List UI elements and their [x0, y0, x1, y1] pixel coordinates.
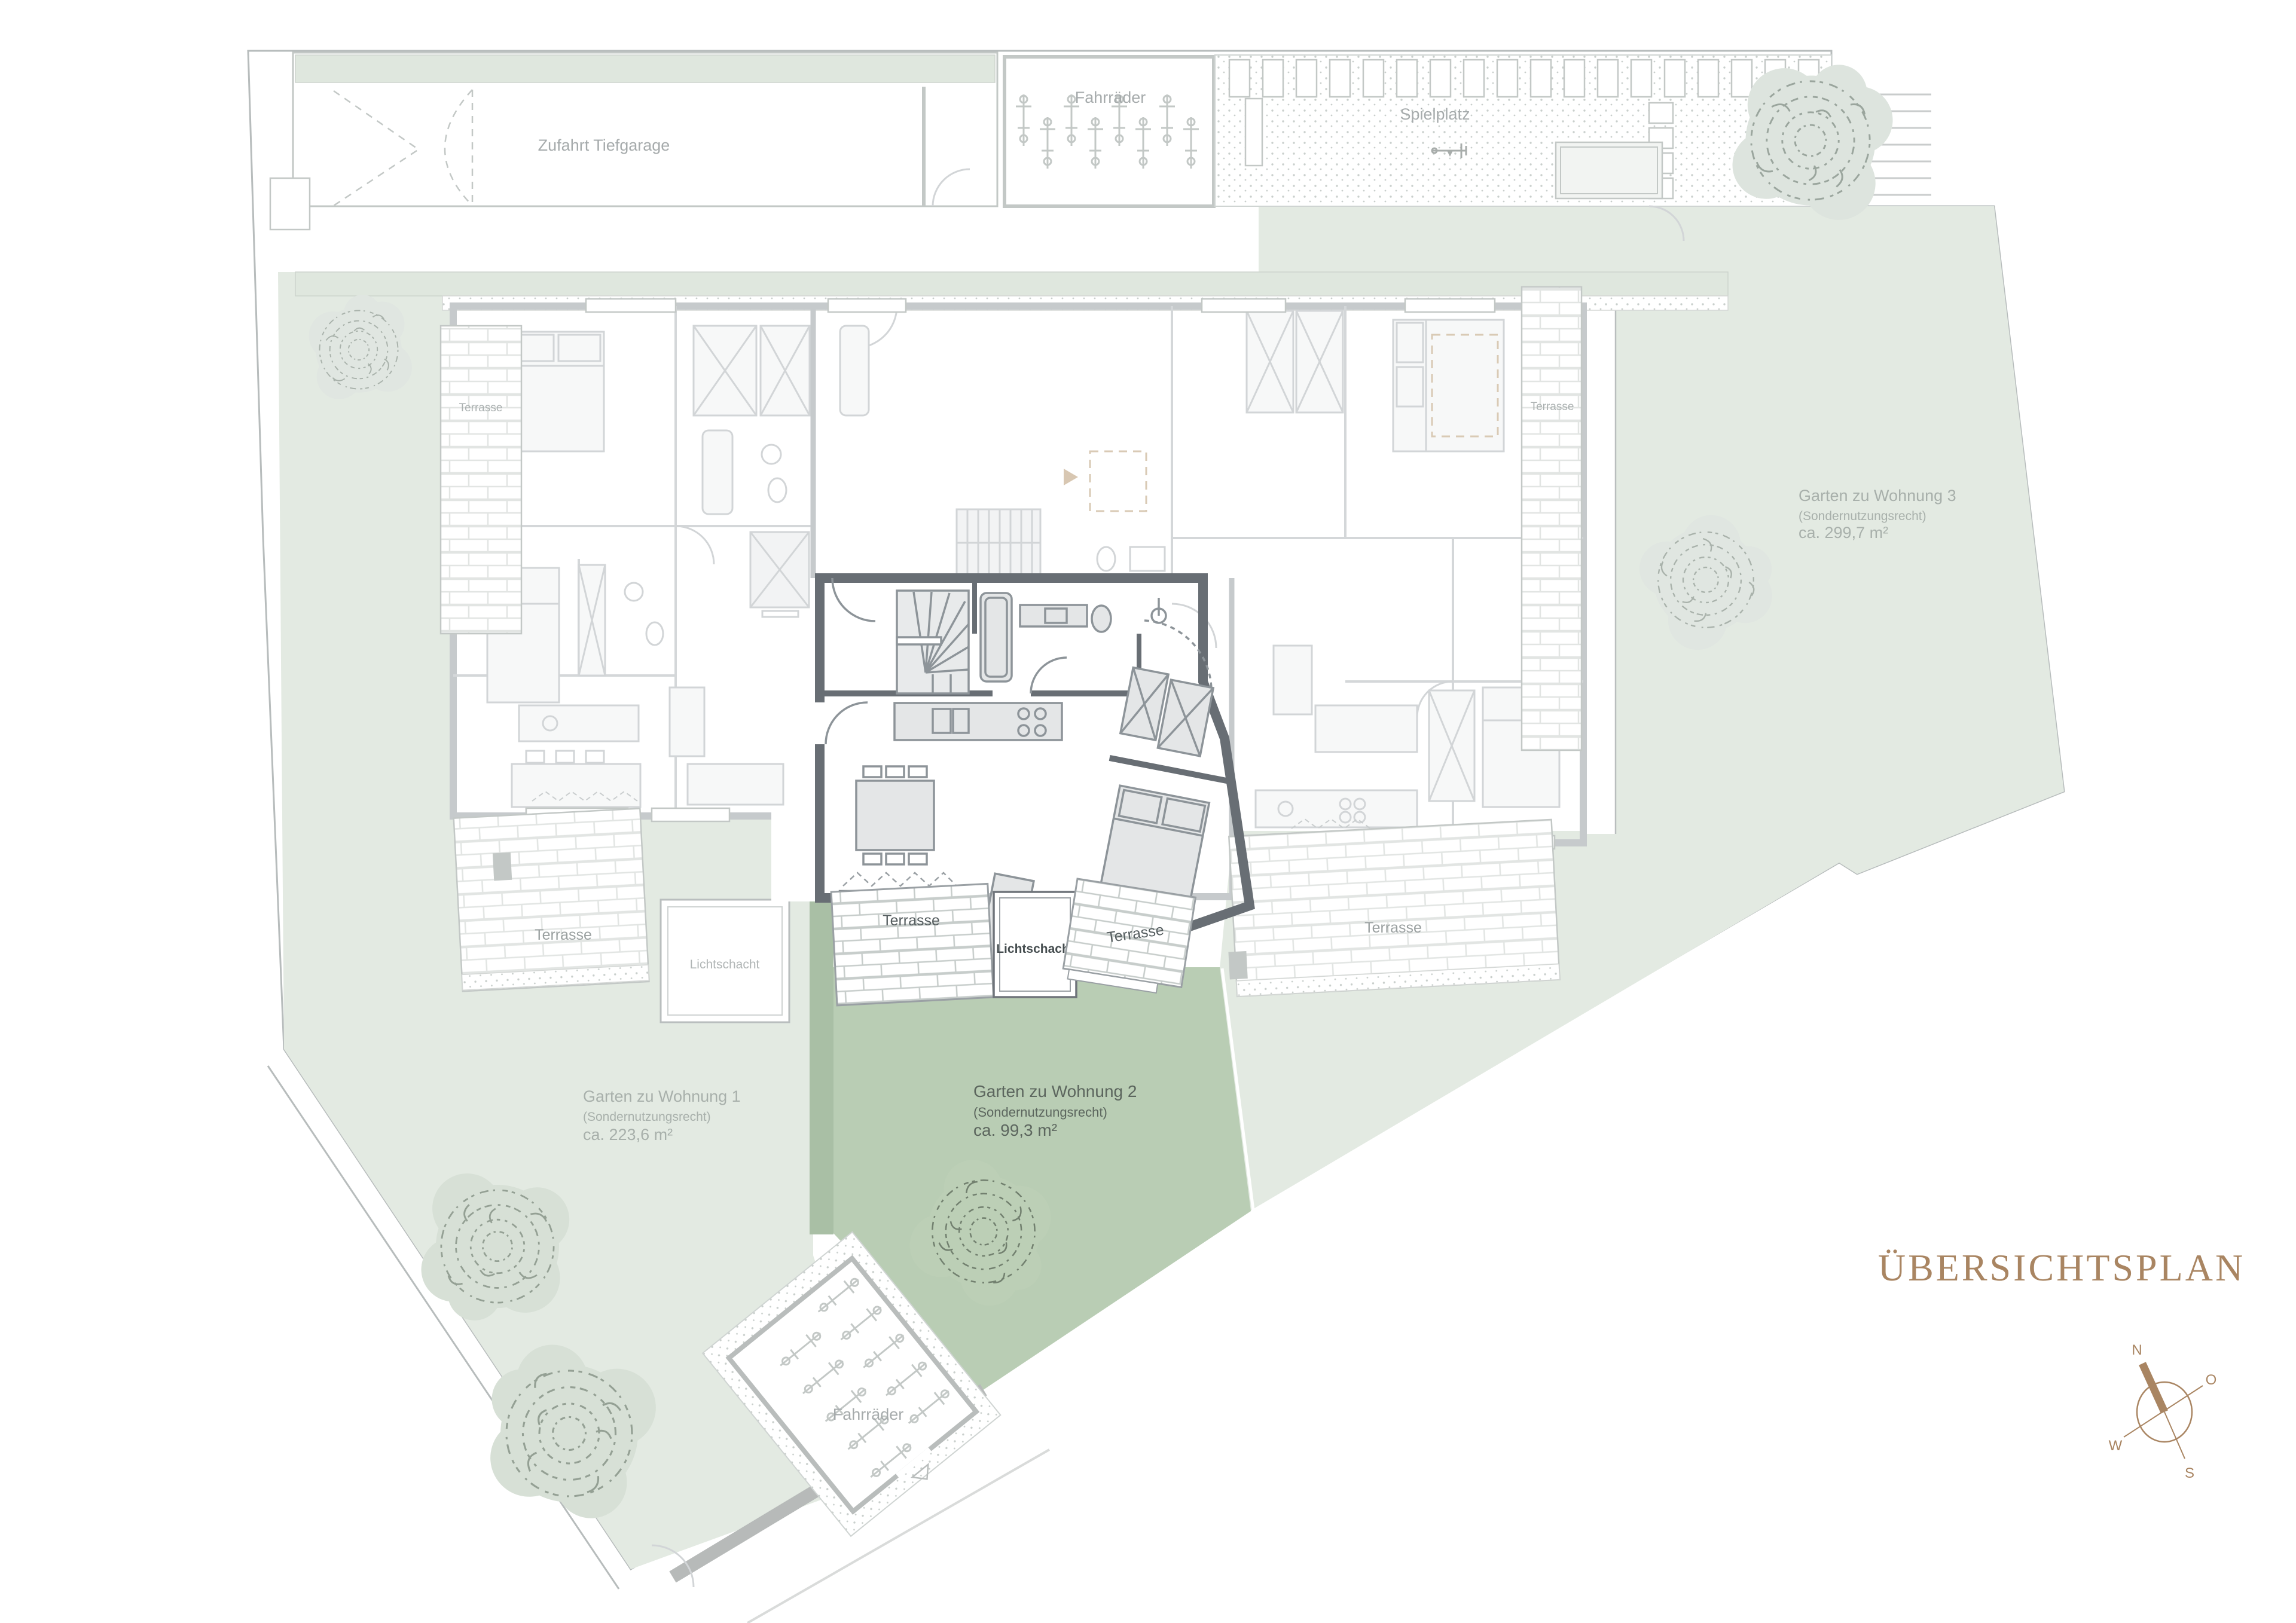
- garden-2-subtitle: (Sondernutzungsrecht): [973, 1105, 1107, 1120]
- sandbox: [1556, 142, 1662, 198]
- garden-1-area-label: ca. 223,6 m²: [583, 1126, 673, 1144]
- unit-dining: [856, 766, 934, 864]
- compass-o: O: [2206, 1372, 2217, 1388]
- compass-needle: [2142, 1364, 2164, 1412]
- terrace-southeast: [1222, 820, 1559, 997]
- unit-terrace-left-label: Terrasse: [883, 912, 940, 929]
- garage-ramp: Zufahrt Tiefgarage: [270, 53, 997, 230]
- terrace-west-side: Terrasse: [441, 326, 521, 634]
- site-plan: Zufahrt Tiefgarage Fahrräder: [0, 0, 2296, 1623]
- terrace-east-label: Terrasse: [1531, 401, 1574, 413]
- unit-stair: [897, 591, 969, 693]
- terrace-west-label: Terrasse: [459, 402, 503, 414]
- garden-2-hedge-strip: [810, 900, 833, 1234]
- lichtschacht-west-label: Lichtschacht: [690, 958, 760, 971]
- bike-room-south-label: Fahrräder: [833, 1405, 904, 1423]
- terrace-east-side: Terrasse: [1522, 287, 1581, 750]
- garage-entry-stoop: [270, 178, 310, 230]
- unit-kitchen: [894, 703, 1062, 740]
- garden-2-area-label: ca. 99,3 m²: [973, 1121, 1057, 1139]
- entry-marker-2: [1064, 469, 1078, 485]
- page-title: ÜBERSICHTSPLAN: [1878, 1246, 2245, 1289]
- garden-1-name: Garten zu Wohnung 1: [583, 1087, 741, 1105]
- terrace-sw-label: Terrasse: [535, 927, 592, 943]
- garden-1-subtitle: (Sondernutzungsrecht): [583, 1110, 711, 1124]
- garden-2-name: Garten zu Wohnung 2: [973, 1082, 1137, 1101]
- terrace-se-label: Terrasse: [1364, 919, 1422, 936]
- lichtschacht-center-label: Lichtschacht: [996, 942, 1074, 956]
- unit-entry-door-arc: [826, 702, 868, 744]
- green-strip-garage: [295, 55, 995, 82]
- garden-3-subtitle: (Sondernutzungsrecht): [1799, 509, 1926, 523]
- playground-label: Spielplatz: [1400, 105, 1470, 123]
- compass-s: S: [2185, 1465, 2194, 1481]
- garden-3-area-label: ca. 299,7 m²: [1799, 524, 1888, 542]
- compass-n: N: [2132, 1342, 2142, 1358]
- bike-room-north: Fahrräder: [1004, 57, 1214, 206]
- common-stair: [957, 509, 1040, 576]
- green-strip-north: [295, 272, 1728, 296]
- garage-label: Zufahrt Tiefgarage: [538, 136, 670, 154]
- terrace-southwest: [454, 808, 649, 991]
- bike-room-north-label: Fahrräder: [1075, 88, 1146, 106]
- unit-terraces: Terrasse Lichtschacht Terrasse: [831, 879, 1195, 1005]
- garden-3-name: Garten zu Wohnung 3: [1799, 487, 1956, 505]
- building-faded: [453, 299, 1583, 897]
- furniture-left-unit: [487, 306, 897, 814]
- elevator: [750, 532, 809, 617]
- compass-rose: N O W S: [2109, 1342, 2217, 1481]
- unit-entry-gap: [814, 702, 826, 744]
- compass-w: W: [2109, 1438, 2123, 1454]
